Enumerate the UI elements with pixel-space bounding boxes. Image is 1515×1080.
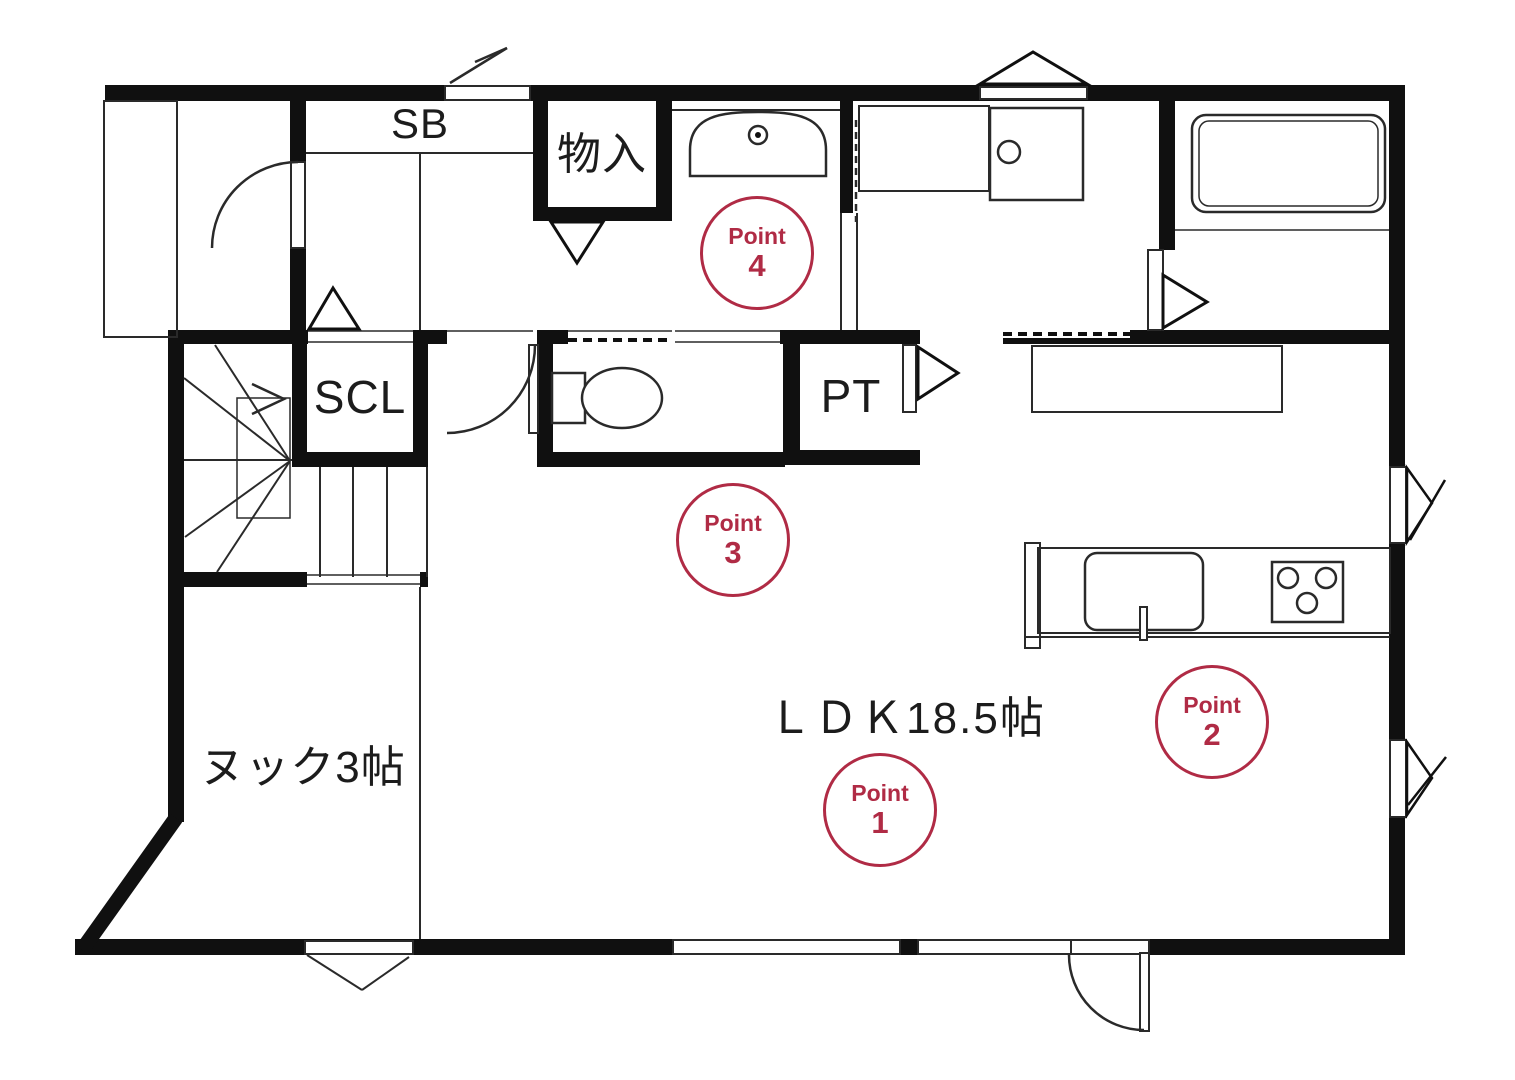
storage-door-triangle — [551, 222, 603, 263]
room-label-shoe-closet: SCL — [314, 370, 406, 424]
room-label-storage: 物入 — [557, 118, 647, 182]
porch-outline — [104, 101, 177, 337]
front-door-swing-arc — [212, 162, 298, 248]
bathtub — [1175, 115, 1389, 230]
point-marker-1-number: 1 — [871, 807, 888, 840]
point-marker-2: Point 2 — [1155, 665, 1269, 779]
corridor-door-arc — [447, 345, 535, 433]
point-marker-4-number: 4 — [748, 250, 765, 283]
pantry-door-triangle — [918, 347, 958, 399]
kitchen-counter — [1025, 543, 1390, 648]
room-label-pantry: PT — [821, 369, 882, 423]
stove-burner — [1297, 593, 1317, 613]
toilet-sliding-door — [568, 330, 672, 344]
bath-door-triangle — [1163, 275, 1207, 328]
stove-burner — [1278, 568, 1298, 588]
point-marker-2-number: 2 — [1203, 719, 1220, 752]
washbasin — [672, 110, 840, 176]
point-marker-4-label: Point — [728, 224, 786, 248]
sink-faucet — [1140, 607, 1147, 640]
bay-window-triangle — [980, 52, 1087, 84]
point-marker-3-label: Point — [704, 511, 762, 535]
front-door-leaf — [291, 162, 305, 248]
terrace-door-leaf — [1140, 953, 1149, 1031]
floor-plan: SB 物入 SCL PT ＬＤＫ18.5帖 ヌック3帖 Point 1 Poin… — [0, 0, 1515, 1080]
diagonal-wall — [82, 818, 176, 950]
kitchen-back-counter — [1032, 346, 1282, 412]
toilet — [552, 368, 662, 428]
nook-window-opening-lines — [307, 955, 409, 990]
laundry-area — [859, 106, 1083, 200]
point-marker-2-label: Point — [1183, 693, 1241, 717]
room-label-ldk: ＬＤＫ18.5帖 — [768, 682, 1046, 746]
point-marker-3-number: 3 — [724, 537, 741, 570]
bath-door-leaf — [1148, 250, 1163, 330]
room-label-shoe-box: SB — [391, 100, 449, 148]
point-marker-1: Point 1 — [823, 753, 937, 867]
stove-burner — [1316, 568, 1336, 588]
point-marker-1-label: Point — [851, 781, 909, 805]
pantry-door-leaf — [903, 345, 916, 412]
room-label-nook: ヌック3帖 — [200, 731, 405, 795]
kitchen-dashed-line — [1003, 330, 1130, 338]
point-marker-3: Point 3 — [676, 483, 790, 597]
terrace-door-arc — [1069, 955, 1144, 1030]
point-marker-4: Point 4 — [700, 196, 814, 310]
scl-door-triangle — [309, 288, 359, 329]
